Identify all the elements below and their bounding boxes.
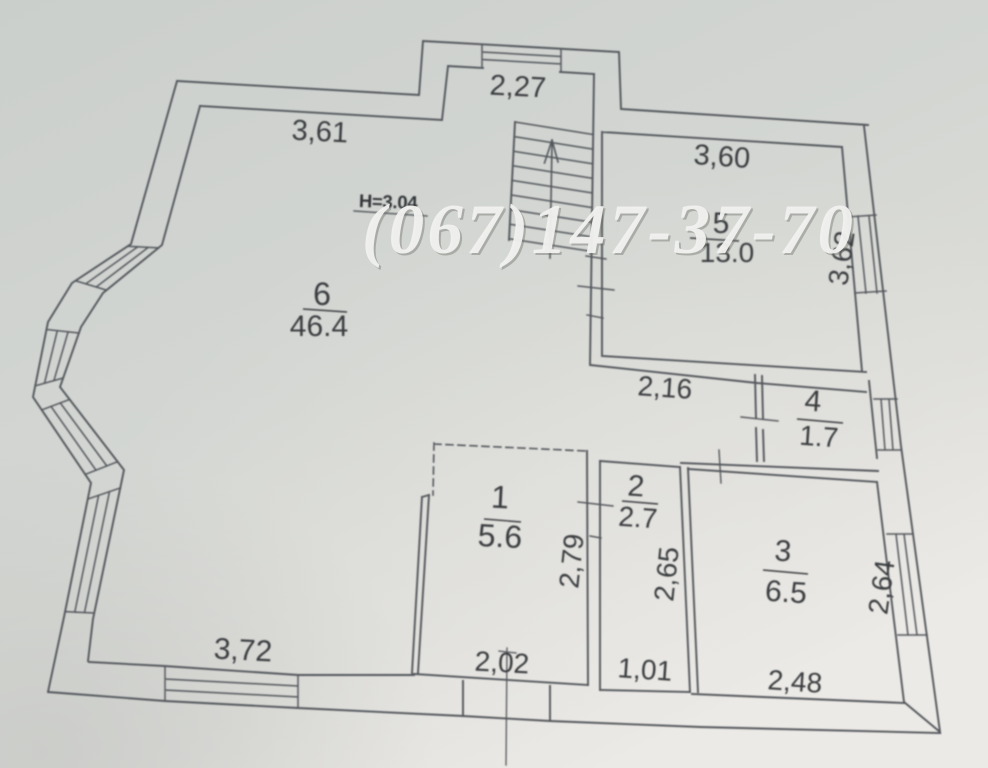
svg-text:2: 2 [626,469,645,503]
svg-text:46.4: 46.4 [290,310,348,343]
svg-text:2,27: 2,27 [489,70,547,105]
svg-text:1: 1 [490,479,510,516]
svg-text:(067)147-37-70: (067)147-37-70 [362,191,856,269]
svg-text:6.5: 6.5 [764,575,808,611]
svg-text:6: 6 [313,276,331,312]
svg-text:2,65: 2,65 [648,545,685,602]
svg-text:2,02: 2,02 [474,646,530,680]
svg-text:1.7: 1.7 [798,420,839,454]
svg-text:5.6: 5.6 [477,517,523,555]
svg-text:4: 4 [803,384,822,418]
svg-text:2,48: 2,48 [767,664,824,699]
svg-text:2,79: 2,79 [553,532,590,589]
svg-text:3,72: 3,72 [213,632,273,668]
svg-text:2.7: 2.7 [617,501,658,535]
svg-text:3: 3 [773,534,792,568]
svg-text:1,01: 1,01 [617,652,674,687]
svg-text:3,61: 3,61 [291,115,349,150]
svg-text:3,60: 3,60 [693,139,752,175]
svg-text:2,16: 2,16 [637,370,694,405]
